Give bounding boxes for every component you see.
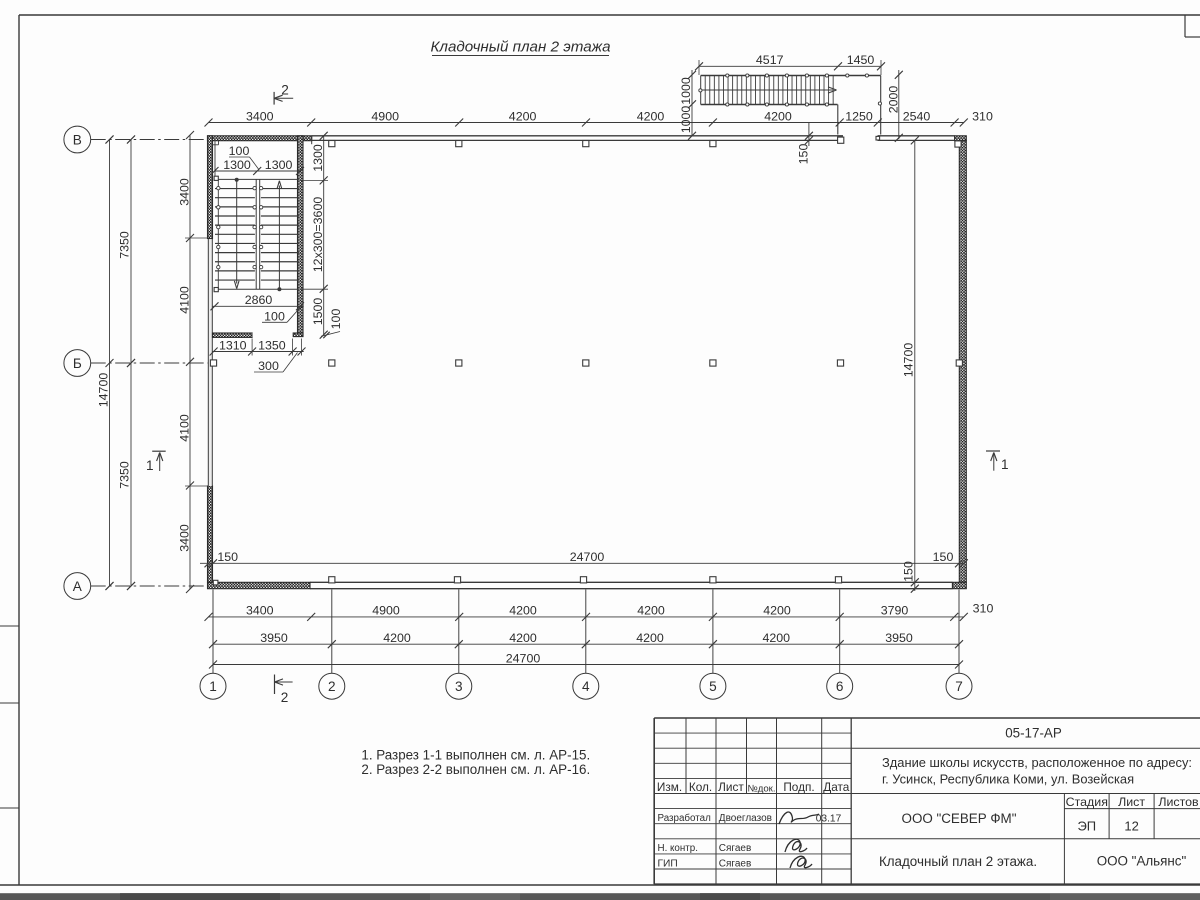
svg-text:7350: 7350: [118, 461, 132, 489]
svg-text:2540: 2540: [903, 109, 931, 123]
svg-text:24700: 24700: [506, 651, 541, 665]
svg-text:4200: 4200: [637, 604, 665, 618]
svg-text:Н. контр.: Н. контр.: [658, 843, 698, 854]
svg-text:Кладочный план 2 этажа: Кладочный план 2 этажа: [430, 39, 610, 56]
svg-text:Изм.: Изм.: [657, 780, 682, 794]
svg-text:1300: 1300: [223, 158, 251, 172]
svg-text:Подп.: Подп.: [783, 780, 814, 794]
svg-text:4517: 4517: [756, 53, 784, 67]
svg-text:05-17-АР: 05-17-АР: [1005, 726, 1062, 741]
svg-text:3400: 3400: [246, 109, 274, 123]
svg-text:12х300=3600: 12х300=3600: [311, 197, 325, 273]
svg-text:4200: 4200: [763, 631, 791, 645]
svg-text:4: 4: [582, 679, 590, 694]
svg-text:150: 150: [796, 144, 810, 165]
svg-text:г. Усинск, Республика Коми, ул: г. Усинск, Республика Коми, ул. Возейска…: [882, 772, 1134, 787]
svg-text:24700: 24700: [570, 550, 605, 564]
svg-text:3400: 3400: [177, 178, 191, 206]
svg-text:1: 1: [1001, 457, 1009, 472]
svg-text:4200: 4200: [509, 109, 537, 123]
svg-text:14700: 14700: [902, 343, 916, 378]
svg-text:№док.: №док.: [747, 784, 775, 795]
svg-text:3400: 3400: [177, 524, 191, 552]
svg-text:Сягаев: Сягаев: [719, 843, 752, 854]
svg-text:Здание школы искусств, располо: Здание школы искусств, расположенное по …: [882, 755, 1192, 770]
svg-text:4200: 4200: [637, 109, 665, 123]
svg-text:2. Разрез 2-2 выполнен см. л.: 2. Разрез 2-2 выполнен см. л. АР-16.: [361, 762, 590, 777]
svg-text:Двоеглазов: Двоеглазов: [719, 813, 772, 824]
svg-text:Лист: Лист: [718, 780, 744, 794]
svg-text:Листов: Листов: [1158, 795, 1199, 809]
svg-text:Лист: Лист: [1118, 795, 1145, 809]
svg-text:2860: 2860: [245, 293, 273, 307]
svg-text:1450: 1450: [847, 53, 875, 67]
svg-text:Кладочный план 2 этажа.: Кладочный план 2 этажа.: [879, 854, 1037, 869]
svg-text:Дата: Дата: [823, 780, 850, 794]
svg-text:4100: 4100: [177, 414, 191, 442]
svg-text:3950: 3950: [260, 631, 288, 645]
svg-text:12: 12: [1124, 819, 1138, 834]
svg-text:4200: 4200: [509, 631, 537, 645]
svg-text:300: 300: [258, 359, 279, 373]
svg-text:100: 100: [229, 144, 250, 158]
svg-text:Разработал: Разработал: [658, 813, 712, 824]
svg-text:150: 150: [217, 550, 238, 564]
svg-text:2: 2: [281, 83, 289, 98]
svg-text:ООО "Альянс": ООО "Альянс": [1097, 854, 1187, 869]
svg-text:В: В: [73, 132, 82, 147]
svg-text:4200: 4200: [763, 604, 791, 618]
svg-text:1310: 1310: [219, 338, 247, 352]
svg-text:2: 2: [328, 679, 336, 694]
svg-text:Б: Б: [73, 356, 82, 371]
svg-text:1: 1: [209, 679, 217, 694]
svg-text:14700: 14700: [96, 373, 110, 408]
svg-text:03.17: 03.17: [816, 814, 842, 825]
svg-text:3950: 3950: [885, 631, 913, 645]
svg-text:1500: 1500: [311, 298, 325, 326]
svg-text:4900: 4900: [372, 604, 400, 618]
svg-text:4900: 4900: [371, 109, 399, 123]
svg-text:7: 7: [955, 679, 963, 694]
svg-text:1000: 1000: [679, 106, 693, 134]
svg-text:Кол.: Кол.: [689, 780, 712, 794]
svg-text:1300: 1300: [265, 158, 293, 172]
svg-text:150: 150: [902, 561, 916, 582]
svg-text:Стадия: Стадия: [1066, 795, 1108, 809]
svg-text:А: А: [73, 579, 83, 594]
svg-text:4200: 4200: [636, 631, 664, 645]
svg-text:4200: 4200: [764, 109, 792, 123]
svg-text:3400: 3400: [246, 604, 274, 618]
svg-text:ООО "СЕВЕР ФМ": ООО "СЕВЕР ФМ": [902, 811, 1017, 826]
svg-text:1250: 1250: [845, 109, 873, 123]
svg-text:3: 3: [455, 679, 463, 694]
svg-text:ЭП: ЭП: [1077, 819, 1096, 834]
svg-text:1000: 1000: [679, 77, 693, 105]
svg-text:150: 150: [933, 550, 954, 564]
svg-text:310: 310: [973, 602, 994, 616]
svg-text:Сягаев: Сягаев: [719, 858, 752, 869]
svg-text:2: 2: [281, 690, 289, 705]
svg-text:4200: 4200: [509, 604, 537, 618]
svg-text:1300: 1300: [311, 144, 325, 172]
svg-text:1: 1: [146, 458, 154, 473]
svg-text:1350: 1350: [258, 338, 286, 352]
svg-text:5: 5: [709, 679, 717, 694]
svg-text:1. Разрез 1-1 выполнен см. л.: 1. Разрез 1-1 выполнен см. л. АР-15.: [361, 748, 590, 763]
svg-text:3790: 3790: [881, 604, 909, 618]
svg-text:4100: 4100: [177, 286, 191, 314]
svg-text:7350: 7350: [118, 231, 132, 259]
svg-text:ГИП: ГИП: [658, 858, 678, 869]
svg-text:310: 310: [972, 109, 993, 123]
svg-text:6: 6: [836, 679, 844, 694]
svg-text:4200: 4200: [383, 631, 411, 645]
svg-text:100: 100: [264, 310, 285, 324]
svg-text:100: 100: [329, 309, 343, 330]
svg-text:2000: 2000: [886, 86, 900, 114]
